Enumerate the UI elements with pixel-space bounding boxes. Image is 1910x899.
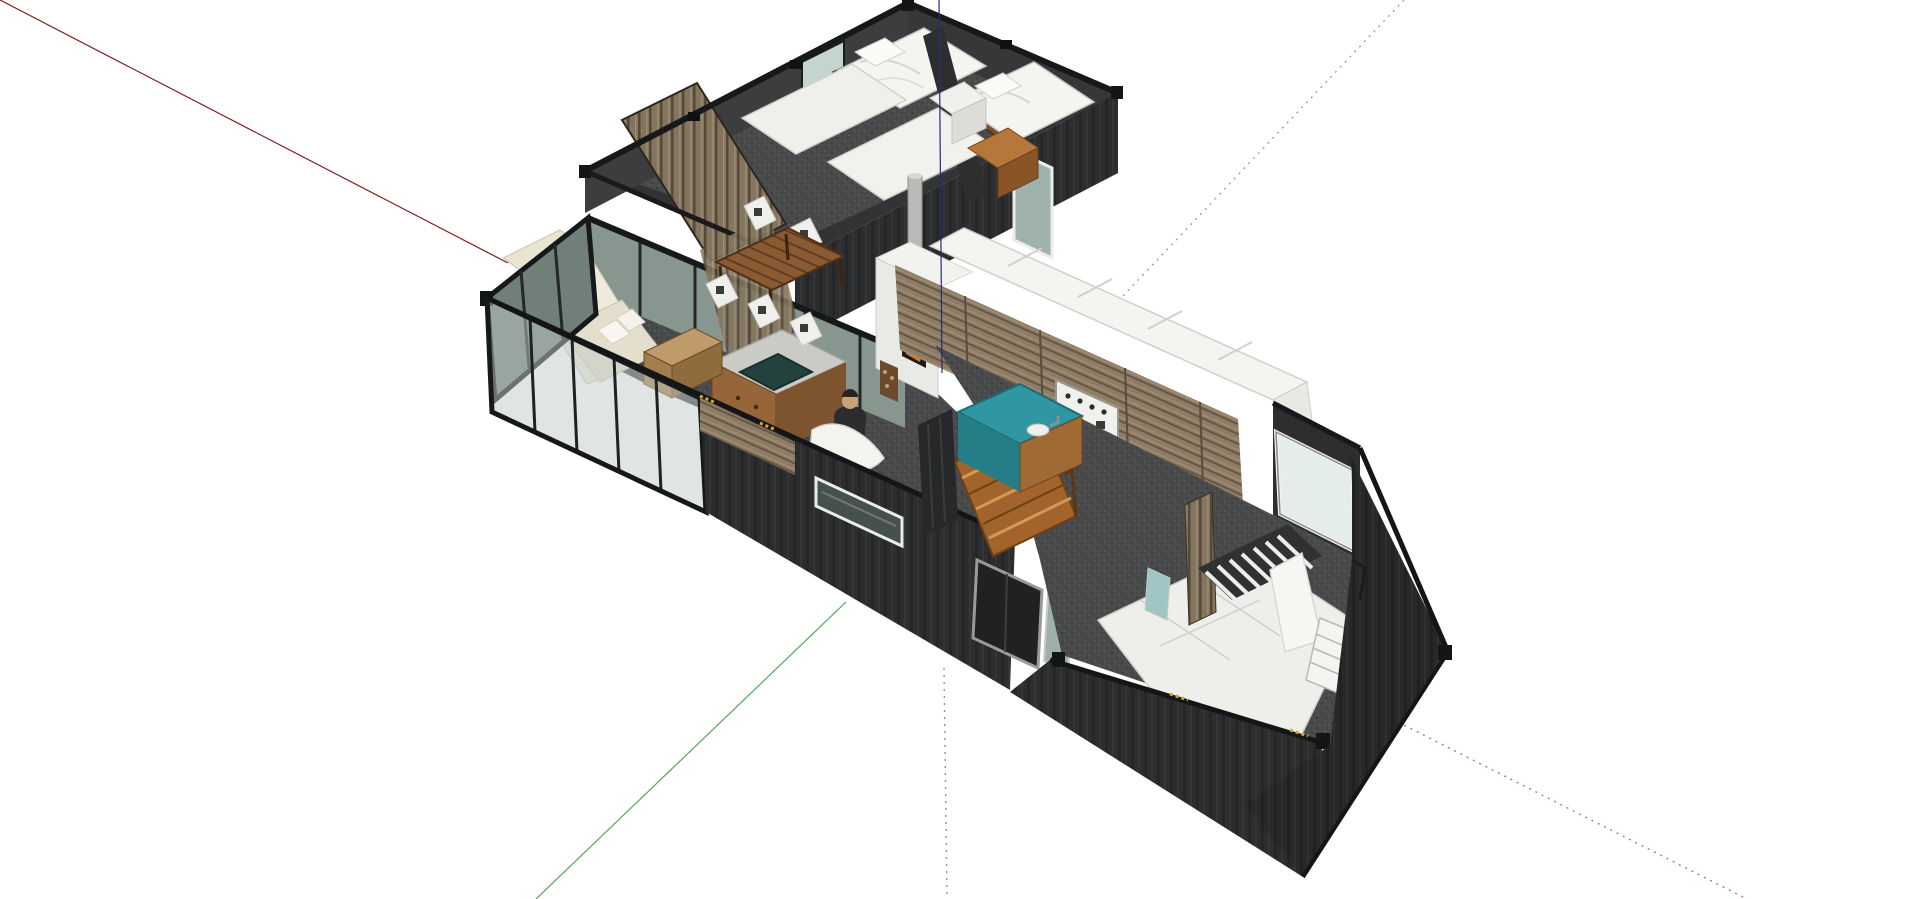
corner-casting [1052, 652, 1065, 667]
corner-casting [1438, 645, 1452, 660]
red-axis-dotted [1398, 722, 1747, 899]
stair-wall [918, 409, 958, 536]
green-axis-dotted [1123, 0, 1404, 296]
rail-connector [790, 60, 802, 69]
model-viewport[interactable] [0, 0, 1910, 899]
sink [1027, 424, 1049, 436]
inner-glass-panel [1145, 568, 1170, 620]
slat-partition [1185, 492, 1216, 625]
green-axis-solid [536, 602, 846, 899]
rail-connector [1000, 40, 1012, 49]
corner-casting [1111, 86, 1123, 99]
corner-casting [579, 165, 591, 178]
viewport-canvas[interactable] [0, 0, 1910, 899]
corner-casting [902, 0, 914, 11]
blue-axis-dotted [944, 668, 947, 899]
container-house-model [480, 0, 1452, 877]
rail-connector [688, 112, 700, 121]
red-axis-solid [0, 0, 508, 263]
